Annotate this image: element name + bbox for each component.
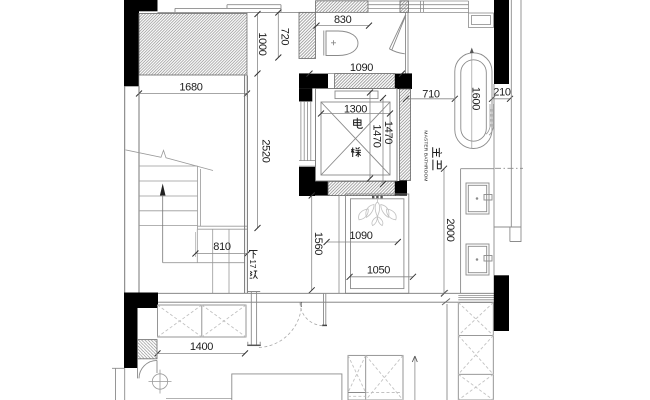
svg-text:1300: 1300 [344, 103, 367, 115]
svg-text:MASTER BATHROOM: MASTER BATHROOM [423, 130, 429, 181]
svg-text:1400: 1400 [190, 341, 213, 353]
svg-text:1090: 1090 [350, 62, 373, 74]
svg-text:710: 710 [422, 88, 440, 100]
svg-text:1000: 1000 [256, 32, 268, 55]
svg-text:17: 17 [248, 260, 257, 269]
svg-text:1680: 1680 [179, 82, 202, 94]
svg-text:1470: 1470 [371, 124, 383, 147]
svg-text:830: 830 [334, 14, 352, 26]
svg-text:810: 810 [213, 241, 231, 253]
svg-text:1470: 1470 [382, 121, 394, 144]
svg-text:1560: 1560 [312, 232, 324, 255]
svg-text:1050: 1050 [367, 265, 390, 277]
svg-text:2000: 2000 [444, 218, 456, 241]
svg-text:1090: 1090 [349, 230, 372, 242]
svg-text:2520: 2520 [260, 139, 272, 162]
svg-text:720: 720 [279, 28, 291, 46]
svg-text:210: 210 [493, 87, 511, 99]
svg-text:1600: 1600 [470, 87, 482, 110]
